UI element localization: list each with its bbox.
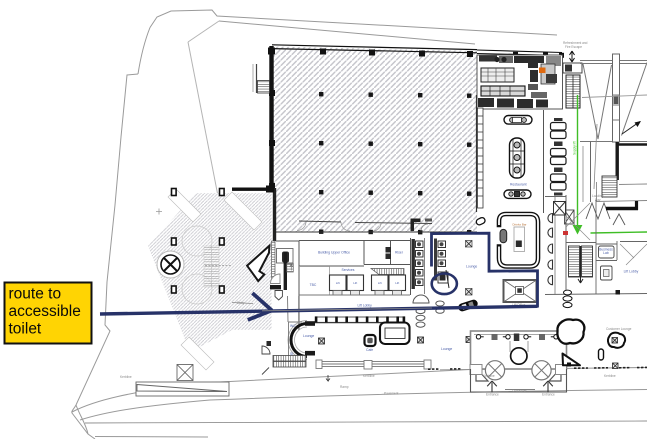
svg-text:Services: Services [341, 268, 354, 272]
svg-text:TBC: TBC [310, 283, 317, 287]
svg-text:Lounge: Lounge [466, 265, 477, 269]
svg-text:Lounge: Lounge [303, 334, 314, 338]
svg-text:Cafe: Cafe [366, 348, 373, 352]
svg-text:Building Upper Office: Building Upper Office [318, 251, 350, 255]
svg-text:Pavement: Pavement [384, 392, 398, 396]
svg-text:Lift: Lift [378, 281, 382, 285]
svg-text:Riser: Riser [395, 251, 404, 255]
svg-text:Crossover: Crossover [512, 389, 527, 393]
svg-text:Drinks Bar: Drinks Bar [513, 223, 527, 227]
svg-text:Customer Lounge: Customer Lounge [606, 327, 632, 331]
svg-text:WC: WC [290, 324, 296, 328]
svg-text:accessible: accessible [9, 303, 81, 320]
svg-text:Kerbline: Kerbline [120, 375, 132, 379]
svg-text:Lounge: Lounge [441, 347, 452, 351]
svg-text:Fire Escape: Fire Escape [565, 45, 582, 49]
svg-text:Kerbline: Kerbline [363, 374, 375, 378]
svg-text:Kerbline: Kerbline [604, 374, 616, 378]
svg-text:Lift: Lift [353, 281, 357, 285]
svg-text:Lift Lobby: Lift Lobby [624, 270, 639, 274]
svg-text:Lift: Lift [395, 281, 399, 285]
svg-text:route to: route to [9, 286, 62, 303]
svg-text:Entrance: Entrance [542, 392, 555, 396]
svg-text:toilet: toilet [9, 321, 42, 338]
svg-text:Entrance: Entrance [486, 392, 499, 396]
svg-text:Lift: Lift [336, 281, 340, 285]
svg-text:Ramp: Ramp [340, 385, 349, 389]
svg-text:Supply lift: Supply lift [573, 141, 577, 155]
svg-text:Lab: Lab [603, 251, 609, 255]
svg-text:Kerbline: Kerbline [483, 374, 495, 378]
svg-text:Lift Lobby: Lift Lobby [358, 303, 373, 307]
svg-text:Restaurant: Restaurant [510, 183, 527, 187]
